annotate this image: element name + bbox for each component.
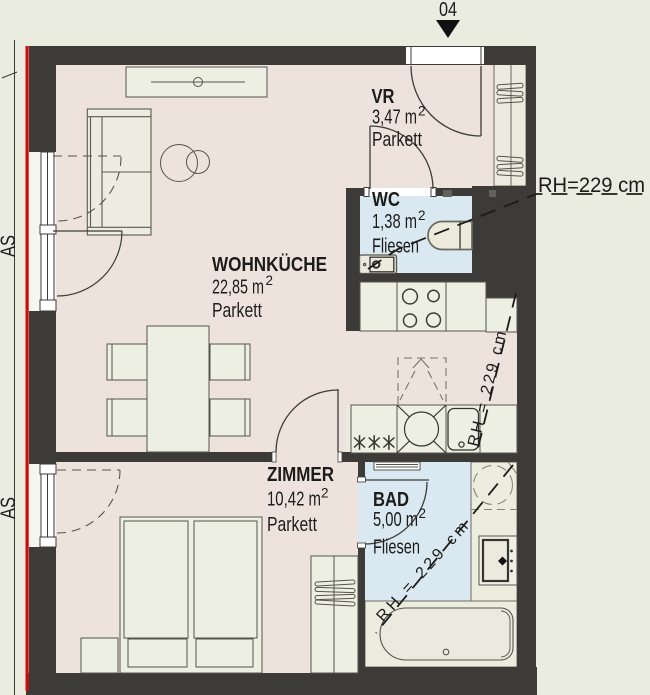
svg-text:2: 2 bbox=[419, 506, 427, 521]
svg-text:2: 2 bbox=[266, 273, 274, 288]
svg-text:22,85 m: 22,85 m bbox=[212, 277, 264, 299]
svg-text:2: 2 bbox=[321, 486, 329, 501]
svg-text:10,42 m: 10,42 m bbox=[267, 489, 321, 511]
svg-text:AS: AS bbox=[0, 497, 20, 519]
svg-text:2: 2 bbox=[418, 104, 426, 119]
svg-text:Parkett: Parkett bbox=[267, 514, 317, 536]
svg-text:Parkett: Parkett bbox=[372, 129, 422, 151]
svg-text:Fliesen: Fliesen bbox=[372, 236, 419, 258]
svg-text:Parkett: Parkett bbox=[212, 300, 262, 322]
svg-text:Fliesen: Fliesen bbox=[373, 537, 420, 559]
svg-text:AS: AS bbox=[0, 235, 20, 257]
svg-text:ZIMMER: ZIMMER bbox=[267, 464, 334, 486]
svg-text:1,38 m: 1,38 m bbox=[372, 211, 417, 233]
svg-text:WC: WC bbox=[372, 189, 400, 211]
svg-text:3,47 m: 3,47 m bbox=[372, 107, 417, 129]
svg-text:04: 04 bbox=[439, 0, 457, 21]
svg-text:VR: VR bbox=[372, 86, 395, 108]
svg-text:RH=229 cm: RH=229 cm bbox=[538, 174, 645, 197]
svg-text:BAD: BAD bbox=[373, 489, 409, 511]
svg-text:2: 2 bbox=[418, 208, 426, 223]
svg-text:5,00 m: 5,00 m bbox=[373, 509, 418, 531]
